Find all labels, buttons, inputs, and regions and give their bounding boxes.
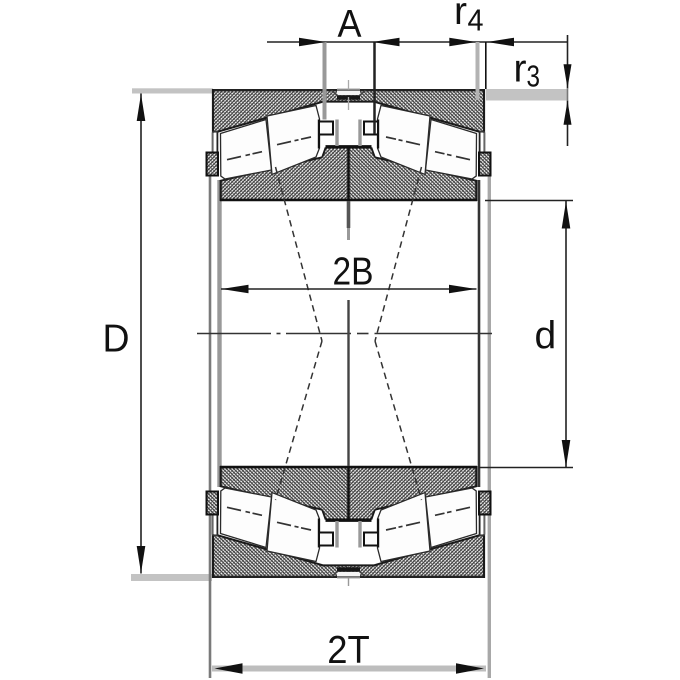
svg-text:r: r: [454, 0, 467, 33]
svg-text:D: D: [103, 318, 130, 361]
svg-text:4: 4: [468, 3, 484, 38]
svg-text:d: d: [535, 315, 557, 358]
svg-text:3: 3: [527, 59, 541, 94]
svg-text:r: r: [514, 48, 527, 91]
svg-text:2T: 2T: [327, 629, 370, 672]
svg-text:2B: 2B: [333, 251, 374, 294]
svg-text:A: A: [338, 3, 362, 46]
